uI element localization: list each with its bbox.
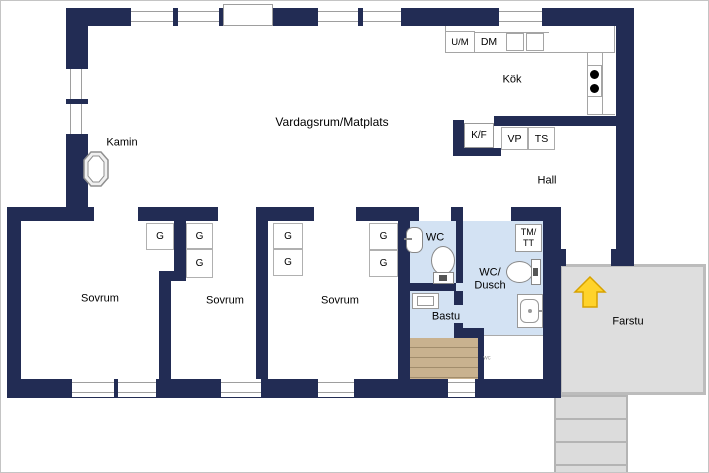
kitchen-sink-left [506,33,524,51]
floor-plan: U/M G G G G G G G TM/ TT [0,0,709,473]
door-bedroom2 [218,207,256,221]
porch-steps [554,395,628,473]
faucet-icon [404,238,412,240]
washer-combo-box: U/M [445,31,475,53]
wall-bed2-bed3 [256,210,268,379]
sauna-heater-inner [417,296,434,306]
wardrobe-bedroom2-a: G [186,223,213,249]
room-label-living: Vardagsrum/Matplats [275,116,388,130]
fridge-freezer-label: K/F [471,130,487,141]
toilet-icon [506,261,533,283]
window-top-3 [499,8,542,26]
window-left-divider [66,99,88,104]
toilet-tank-dot [533,268,538,276]
laundry-label-2: TT [523,238,534,249]
room-label-bedroom1: Sovrum [81,293,119,306]
stove-burner-icon [590,84,599,93]
door-bedroom1 [94,207,138,221]
wardrobe-bedroom3-c: G [369,223,398,250]
entrance-arrow-icon [573,276,607,308]
wall-sauna-shower-upper [454,291,463,305]
wall-bed1-bed2-jog [159,271,186,281]
door-wc [419,207,451,221]
room-label-bedroom3: Sovrum [321,295,359,308]
wardrobe-label: G [284,257,292,268]
wardrobe-label: G [380,258,388,269]
wardrobe-label: G [156,231,164,242]
dishwasher-label: DM [481,36,497,48]
shower-partition-line [484,335,543,336]
wall-wing-left [7,207,21,398]
wardrobe-label: G [284,231,292,242]
wall-east-wing [543,209,561,398]
washbasin-drain [528,309,532,313]
toilet-tank-dot [439,275,447,281]
heat-pump-label: VP [507,133,521,145]
laundry-box: TM/ TT [515,224,542,252]
wall-bed1-bed2-upper [174,221,186,271]
faucet-icon [539,310,543,312]
stove-burner-icon [590,70,599,79]
wardrobe-label: G [196,258,204,269]
wardrobe-bedroom1: G [146,223,174,250]
wall-hall-corner [611,249,634,266]
wardrobe-bedroom3-d: G [369,250,398,277]
room-label-bedroom2: Sovrum [206,295,244,308]
window-bottom-1b [118,379,156,397]
wardrobe-label: G [196,231,204,242]
window-bottom-4 [448,379,475,397]
room-label-porch: Farstu [612,316,643,329]
sink-icon [406,227,423,253]
wall-bed1-bed2-lower [159,281,171,379]
room-label-wc: WC [426,232,444,245]
room-label-shower: WC/ Dusch [474,266,505,291]
window-bottom-3 [318,379,354,397]
room-label-sauna: Bastu [432,311,460,324]
fridge-freezer-box: K/F [464,123,494,148]
room-label-fireplace: Kamin [106,137,137,150]
drying-cabinet-label: TS [535,133,548,145]
fireplace-icon [83,151,109,187]
window-top-1-divider [173,8,178,26]
kitchen-sink-right [526,33,544,51]
heat-pump-box: VP [501,127,528,150]
room-label-hall: Hall [538,175,557,188]
laundry-label-1: TM/ [521,227,537,238]
drying-cabinet-box: TS [528,127,555,150]
door-bedroom3 [314,207,356,221]
shower-label-line2: Dusch [474,279,505,292]
counter-inner-line [602,53,603,114]
wardrobe-bedroom3-b: G [273,249,303,276]
room-label-kitchen: Kök [503,74,522,87]
window-bottom-1a [72,379,114,397]
wall-kitchen-hall [494,116,616,126]
door-shower-room [463,207,511,221]
sauna-wood-bench [407,338,478,379]
window-bottom-2 [221,379,261,397]
wardrobe-label: G [380,231,388,242]
chimney [223,4,273,26]
wall-right [616,8,634,249]
wall-fridge-alcove-bottom [453,148,501,156]
wall-wc-shower [456,221,463,283]
small-wc-note: wc [483,356,490,363]
toilet-icon [431,246,455,275]
shower-label-line1: WC/ [474,266,505,279]
washer-combo-label: U/M [451,37,468,48]
wall-wc-sauna [398,283,456,291]
wardrobe-bedroom2-b: G [186,249,213,278]
wardrobe-bedroom3-a: G [273,223,303,249]
window-top-2-divider [358,8,363,26]
